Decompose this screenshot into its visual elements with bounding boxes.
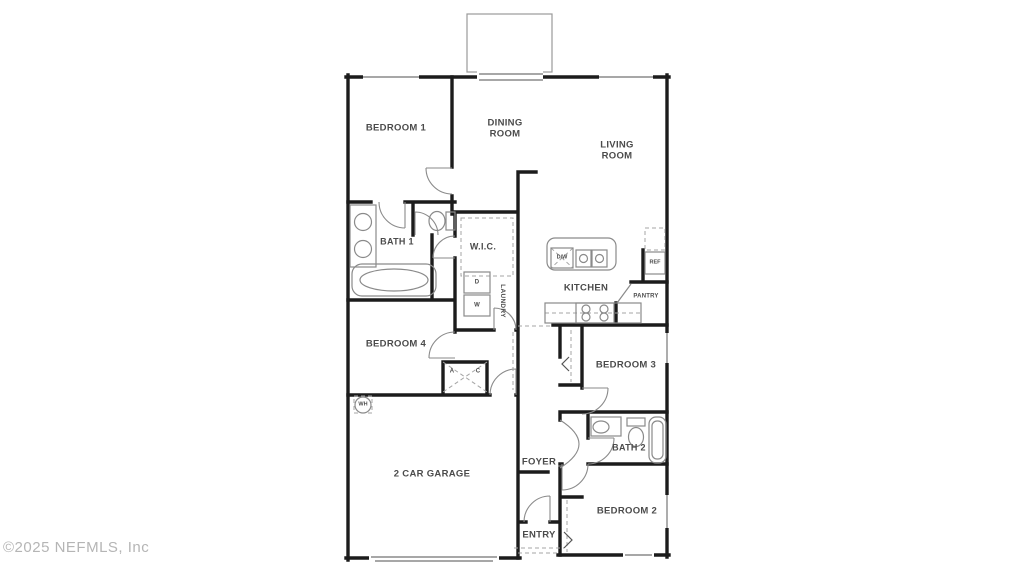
- room-labels: BEDROOM 1 DINING ROOM LIVING ROOM BATH 1…: [0, 0, 1024, 576]
- fixture-label-air-handler-c: C: [476, 368, 481, 375]
- room-label-bedroom3: BEDROOM 3: [596, 359, 656, 370]
- floor-plan-image: BEDROOM 1 DINING ROOM LIVING ROOM BATH 1…: [0, 0, 1024, 576]
- room-label-entry: ENTRY: [522, 529, 555, 540]
- fixture-label-dishwasher: D/W: [557, 255, 568, 262]
- room-label-bath2: BATH 2: [612, 443, 646, 454]
- room-label-bedroom2: BEDROOM 2: [597, 505, 657, 516]
- fixture-label-washer: W: [474, 302, 480, 309]
- fixture-label-water-heater: WH: [358, 402, 367, 409]
- room-label-wic: W.I.C.: [470, 242, 496, 253]
- fixture-label-dryer: D: [475, 279, 480, 286]
- room-label-kitchen: KITCHEN: [564, 282, 608, 293]
- room-label-bath1: BATH 1: [380, 237, 414, 248]
- room-label-bedroom4: BEDROOM 4: [366, 338, 426, 349]
- room-label-laundry: LAUNDRY: [498, 284, 506, 318]
- watermark: ©2025 NEFMLS, Inc: [3, 539, 149, 556]
- room-label-living-room: LIVING ROOM: [600, 140, 633, 163]
- room-label-pantry: PANTRY: [633, 293, 658, 300]
- fixture-label-refrigerator: REF: [650, 260, 661, 267]
- room-label-garage: 2 CAR GARAGE: [394, 468, 470, 479]
- room-label-dining-room: DINING ROOM: [487, 118, 522, 141]
- fixture-label-air-handler-a: A: [450, 368, 455, 375]
- room-label-bedroom1: BEDROOM 1: [366, 122, 426, 133]
- room-label-foyer: FOYER: [522, 456, 556, 467]
